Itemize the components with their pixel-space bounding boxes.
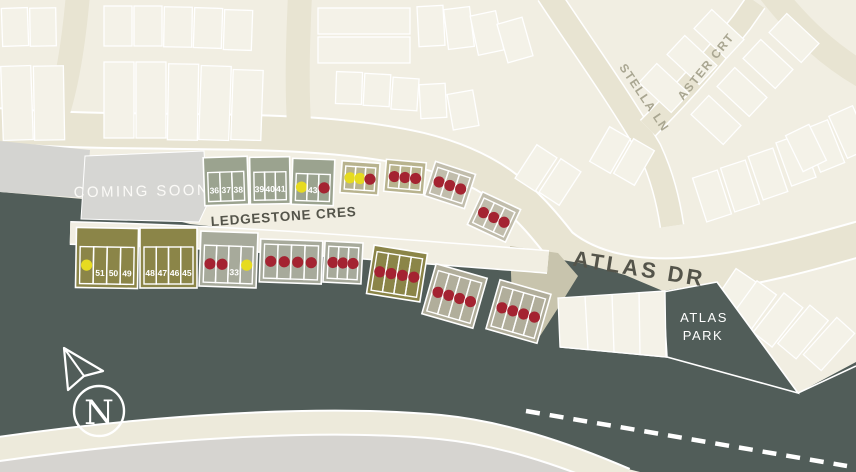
lot-block-lots-row1-4[interactable]	[340, 161, 380, 196]
lot-block-lots-45-48[interactable]: 48474645	[140, 228, 197, 288]
lot-number: 38	[233, 184, 243, 194]
lot-number: 43	[308, 185, 318, 195]
site-plan-map: COMING SOON 3637383940414351504948474645…	[0, 0, 856, 472]
lot-number: 37	[221, 185, 231, 195]
lot-block-lots-row2-5[interactable]	[323, 241, 363, 284]
coming-soon-label: COMING SOON	[74, 182, 211, 201]
lot-block-lots-36-38[interactable]: 363738	[203, 156, 249, 206]
lot-block-lots-39-41[interactable]: 394041	[250, 157, 291, 205]
lot-block-lots-33[interactable]: 33	[199, 231, 258, 288]
lot-number: 41	[276, 184, 286, 194]
lot-number: 40	[265, 184, 275, 194]
homes-south-atlas	[558, 291, 666, 357]
park-label-line1: ATLAS	[680, 310, 728, 325]
lot-number: 47	[158, 268, 168, 278]
lot-block-lots-row2-4[interactable]	[259, 239, 322, 284]
lot-number: 45	[182, 268, 192, 278]
lot-block-lots-row1-5[interactable]	[384, 159, 427, 194]
lot-number: 48	[145, 268, 155, 278]
lot-number: 49	[122, 268, 132, 278]
lot-number: 50	[109, 268, 119, 278]
lot-number: 51	[95, 268, 105, 278]
site-plan-svg: COMING SOON 3637383940414351504948474645…	[0, 0, 856, 472]
park-label-line2: PARK	[683, 328, 723, 343]
lot-number: 46	[170, 268, 180, 278]
compass-north-label: N	[84, 393, 114, 433]
lot-block-lots-row2-6[interactable]	[366, 245, 427, 302]
lot-number: 39	[255, 184, 265, 194]
lot-block-lots-42-44[interactable]: 43	[291, 158, 335, 205]
lot-number: 33	[229, 267, 239, 277]
lot-number: 36	[209, 185, 219, 195]
lot-block-lots-49-51[interactable]: 515049	[75, 227, 138, 288]
